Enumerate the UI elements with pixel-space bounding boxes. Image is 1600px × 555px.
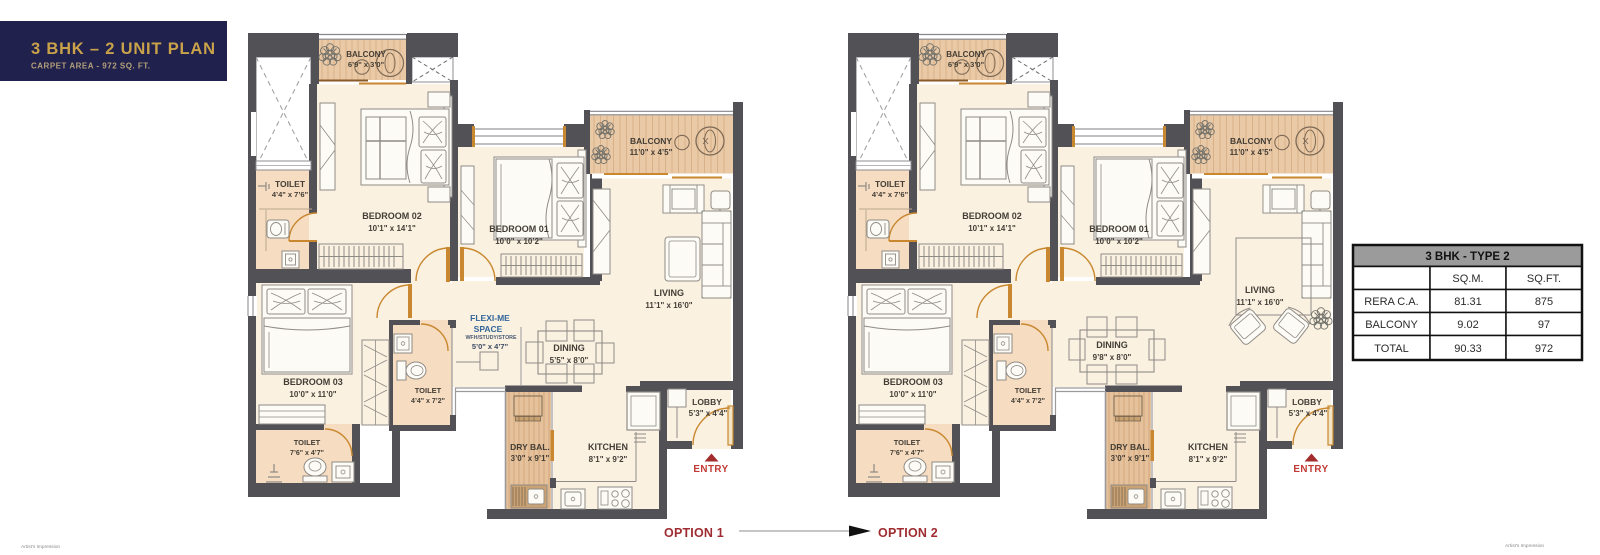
svg-text:TOILET: TOILET [894,438,921,447]
svg-text:5’3" x 4’4": 5’3" x 4’4" [689,409,728,418]
svg-text:9’8" x 8’0": 9’8" x 8’0" [1093,353,1132,362]
svg-text:LIVING: LIVING [654,288,684,298]
svg-text:10’0" x 10’2": 10’0" x 10’2" [495,237,543,246]
svg-text:BEDROOM 02: BEDROOM 02 [362,211,422,221]
svg-text:972: 972 [1535,343,1553,355]
svg-text:DINING: DINING [1096,340,1128,350]
svg-text:3’0" x 9’1": 3’0" x 9’1" [1111,454,1150,463]
svg-text:10’1" x 14’1": 10’1" x 14’1" [368,224,416,233]
svg-text:FLEXI-ME: FLEXI-ME [470,313,510,323]
svg-text:875: 875 [1535,296,1553,308]
svg-text:BEDROOM 03: BEDROOM 03 [283,377,343,387]
svg-text:BALCONY: BALCONY [1230,136,1272,146]
svg-text:3 BHK - TYPE 2: 3 BHK - TYPE 2 [1425,251,1509,263]
svg-text:CARPET AREA - 972 SQ. FT.: CARPET AREA - 972 SQ. FT. [31,62,150,71]
svg-text:OPTION 1: OPTION 1 [664,526,724,540]
svg-text:BEDROOM 02: BEDROOM 02 [962,211,1022,221]
svg-text:DRY BAL.: DRY BAL. [510,442,550,452]
svg-text:Artist's Impression: Artist's Impression [21,544,60,550]
svg-text:10’0" x 11’0": 10’0" x 11’0" [889,390,936,399]
svg-text:6’9" x 3’0": 6’9" x 3’0" [348,60,385,69]
svg-text:SPACE: SPACE [474,324,503,334]
svg-text:BALCONY: BALCONY [1365,319,1418,331]
svg-text:BALCONY: BALCONY [346,50,386,59]
svg-text:90.33: 90.33 [1454,343,1482,355]
svg-text:DRY BAL.: DRY BAL. [1110,442,1150,452]
svg-text:5’5" x 8’0": 5’5" x 8’0" [550,356,589,365]
svg-text:WFH/STUDY/STORE: WFH/STUDY/STORE [465,335,517,341]
svg-text:4’4" x 7’2": 4’4" x 7’2" [1011,398,1045,405]
svg-text:7’6" x 4’7": 7’6" x 4’7" [890,450,924,457]
svg-text:TOTAL: TOTAL [1374,343,1408,355]
svg-text:5’0" x 4’7": 5’0" x 4’7" [472,342,509,351]
svg-text:TOILET: TOILET [1015,386,1042,395]
svg-text:LOBBY: LOBBY [1292,397,1322,407]
svg-text:BEDROOM 01: BEDROOM 01 [489,224,549,234]
svg-text:9.02: 9.02 [1457,319,1478,331]
svg-text:97: 97 [1538,319,1550,331]
svg-text:BALCONY: BALCONY [946,50,986,59]
svg-text:10’0" x 11’0": 10’0" x 11’0" [289,390,336,399]
svg-text:3’0" x 9’1": 3’0" x 9’1" [511,454,550,463]
svg-text:10’1" x 14’1": 10’1" x 14’1" [968,224,1016,233]
svg-text:KITCHEN: KITCHEN [1188,442,1228,452]
svg-text:KITCHEN: KITCHEN [588,442,628,452]
svg-text:10’0" x 10’2": 10’0" x 10’2" [1095,237,1143,246]
svg-text:81.31: 81.31 [1454,296,1482,308]
svg-text:Artist's Impression: Artist's Impression [1505,543,1544,549]
svg-text:BEDROOM 03: BEDROOM 03 [883,377,943,387]
svg-text:BEDROOM 01: BEDROOM 01 [1089,224,1149,234]
svg-text:11’1" x 16’0": 11’1" x 16’0" [1236,298,1283,307]
svg-text:4’4" x 7’6": 4’4" x 7’6" [872,190,909,199]
svg-text:6’9" x 3’0": 6’9" x 3’0" [948,60,985,69]
svg-text:11’0" x 4’5": 11’0" x 4’5" [630,148,673,157]
svg-text:SQ.FT.: SQ.FT. [1527,273,1561,285]
svg-text:ENTRY: ENTRY [1293,464,1328,475]
svg-text:LOBBY: LOBBY [692,397,722,407]
svg-text:TOILET: TOILET [275,179,306,189]
svg-text:11’1" x 16’0": 11’1" x 16’0" [645,301,692,310]
svg-text:TOILET: TOILET [294,438,321,447]
svg-text:4’4" x 7’2": 4’4" x 7’2" [411,398,445,405]
svg-text:RERA C.A.: RERA C.A. [1364,296,1418,308]
svg-text:8’1" x 9’2": 8’1" x 9’2" [589,455,628,464]
svg-text:DINING: DINING [553,343,585,353]
svg-text:BALCONY: BALCONY [630,136,672,146]
svg-text:OPTION 2: OPTION 2 [878,526,938,540]
svg-text:3 BHK – 2 UNIT PLAN: 3 BHK – 2 UNIT PLAN [31,40,216,58]
svg-text:4’4" x 7’6": 4’4" x 7’6" [272,190,309,199]
svg-text:5’3" x 4’4": 5’3" x 4’4" [1289,409,1328,418]
svg-text:7’6" x 4’7": 7’6" x 4’7" [290,450,324,457]
svg-text:TOILET: TOILET [875,179,906,189]
svg-text:8’1" x 9’2": 8’1" x 9’2" [1189,455,1228,464]
svg-text:LIVING: LIVING [1245,285,1275,295]
svg-text:SQ.M.: SQ.M. [1452,273,1483,285]
svg-text:TOILET: TOILET [415,386,442,395]
svg-text:ENTRY: ENTRY [693,464,728,475]
svg-text:11’0" x 4’5": 11’0" x 4’5" [1230,148,1273,157]
